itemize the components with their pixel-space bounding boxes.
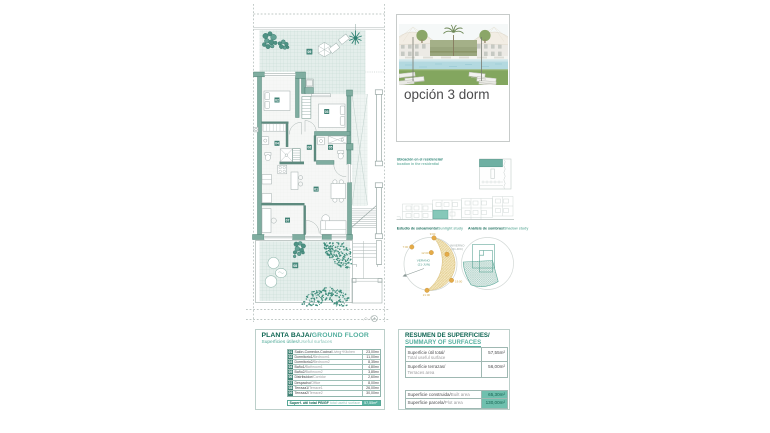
svg-text:Análisis de sombras/Shadow stu: Análisis de sombras/Shadow study [468, 227, 528, 231]
svg-text:08: 08 [293, 264, 297, 268]
svg-text:02: 02 [275, 98, 279, 102]
svg-text:(21-DIC): (21-DIC) [452, 247, 464, 251]
svg-text:07: 07 [286, 219, 290, 223]
svg-text:09: 09 [308, 50, 312, 54]
svg-text:12:00: 12:00 [421, 251, 429, 255]
svg-text:05: 05 [329, 146, 333, 150]
svg-text:location in the residential: location in the residential [397, 162, 439, 166]
svg-text:01: 01 [314, 188, 318, 192]
svg-text:9:00: 9:00 [430, 232, 436, 236]
svg-text:06: 06 [307, 146, 311, 150]
svg-text:7:00: 7:00 [403, 245, 409, 249]
svg-text:03: 03 [325, 110, 329, 114]
svg-text:04: 04 [275, 142, 279, 146]
svg-text:19:00: 19:00 [455, 280, 463, 284]
svg-text:21:00: 21:00 [423, 293, 431, 297]
svg-text:(21-JUN): (21-JUN) [418, 263, 431, 267]
svg-text:Ubicación en el residencial/: Ubicación en el residencial/ [397, 158, 443, 162]
svg-text:Estudio de soleamiento/Sunligh: Estudio de soleamiento/Sunlight study [397, 227, 463, 231]
